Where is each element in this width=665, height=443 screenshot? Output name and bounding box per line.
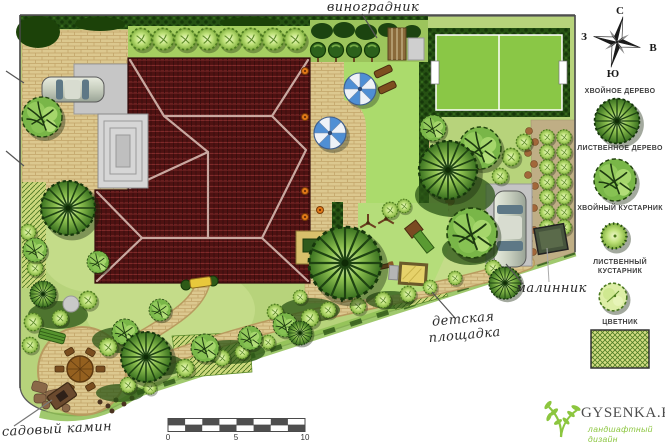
scale-start: 0 <box>166 433 171 442</box>
legend-deciduous-shrub-symbol <box>599 283 631 315</box>
legend-conifer-shrub-symbol <box>601 223 631 254</box>
legend-deciduous-tree-symbol <box>594 159 640 205</box>
compass-east: В <box>649 42 657 54</box>
legend-label-conifer-tree: ХВОЙНОЕ ДЕРЕВО <box>575 87 665 96</box>
sports-field <box>428 28 570 117</box>
compass-west: З <box>581 31 587 43</box>
compass-rose: С Ю З В <box>581 5 657 80</box>
legend-label-flowerbed: ЦВЕТНИК <box>577 318 663 327</box>
scale-bar: 0 5 10 <box>166 419 310 443</box>
scale-middle: 5 <box>234 433 239 442</box>
goal-right <box>559 61 567 84</box>
legend-label-conifer-shrub: ХВОЙНЫЙ КУСТАРНИК <box>577 204 663 213</box>
compass-south: Ю <box>607 68 619 80</box>
logo-branch-icon <box>543 400 581 437</box>
legend-flowerbed-swatch <box>591 330 649 368</box>
legend-label-deciduous-tree: ЛИСТВЕННОЕ ДЕРЕВО <box>575 144 665 153</box>
stone-ball <box>63 296 79 312</box>
legend-label-deciduous-shrub: ЛИСТВЕННЫЙ КУСТАРНИК <box>590 258 650 276</box>
house <box>95 58 334 283</box>
plan-canvas: С Ю З В 0 5 10 <box>0 0 665 443</box>
compass-north: С <box>616 5 624 17</box>
raspberry-label: малинник <box>505 281 597 297</box>
entrance-steps <box>98 114 148 188</box>
compost-box <box>534 224 568 255</box>
hedge-shrub-row <box>128 26 312 58</box>
logo-site-name: GYSENKA.RU <box>581 405 665 422</box>
vineyard-label: виноградник <box>298 0 448 16</box>
legend-conifer-tree-symbol <box>595 99 644 148</box>
landscape-plan-page: С Ю З В 0 5 10 виноградник малинник детс… <box>0 0 665 443</box>
scale-end: 10 <box>301 433 310 442</box>
goal-left <box>431 61 439 84</box>
logo-tagline: ландшафтный дизайн <box>588 424 665 443</box>
car <box>42 77 104 102</box>
